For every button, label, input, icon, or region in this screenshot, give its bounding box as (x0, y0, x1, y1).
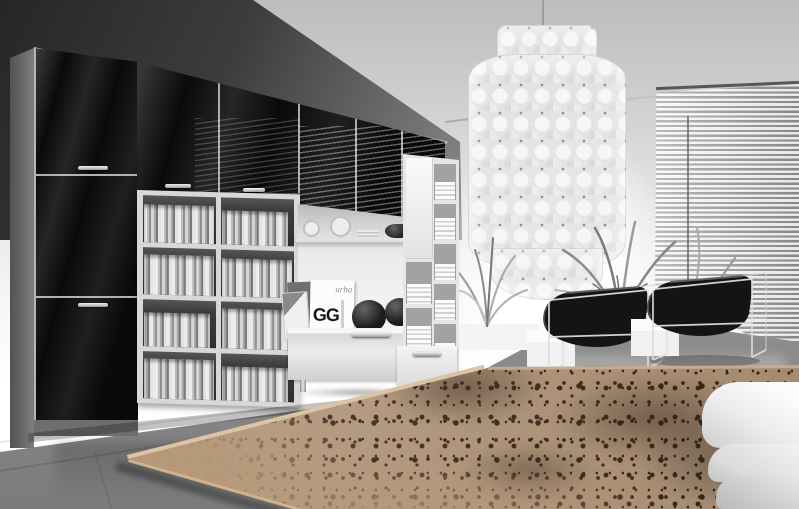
wall-unit-left-doors (34, 48, 140, 420)
books (222, 211, 288, 247)
drawer-handle (352, 333, 390, 337)
shelf-cell (143, 351, 216, 400)
linen-stack (407, 284, 431, 304)
linen-stack (435, 218, 455, 240)
linen-stack (435, 264, 455, 280)
bookcase-cell (434, 164, 456, 200)
books (144, 312, 210, 348)
bookshelf (137, 190, 300, 408)
books (222, 367, 288, 403)
artwork-monogram: GG (313, 305, 339, 326)
bookcase-cell (434, 244, 456, 280)
artwork-gg: urba GG (310, 280, 355, 335)
candlestick (341, 300, 344, 331)
shelf-cell (143, 247, 216, 296)
plate-stack (357, 230, 379, 238)
floating-shelf (296, 238, 414, 242)
bookcase-door (406, 158, 433, 259)
door-divider (36, 296, 140, 298)
books (144, 205, 214, 245)
shelf-cell (221, 197, 294, 246)
artwork-script-word: urba (335, 284, 352, 294)
bookcase-cell (406, 262, 432, 304)
shelf-cell (221, 353, 294, 402)
standing-plate (303, 220, 320, 237)
sofa-base (716, 477, 799, 509)
shelf-cell (143, 195, 216, 244)
bookcase-cell (434, 204, 456, 240)
lounge-chairs (515, 250, 795, 380)
bookcase-cell (434, 284, 456, 320)
door-divider (36, 174, 140, 176)
linen-stack (435, 300, 455, 320)
books (144, 254, 214, 296)
standing-plate (330, 216, 351, 237)
shelf-cell (143, 299, 216, 348)
door-handle (165, 184, 191, 188)
sofa-cushion-top (702, 382, 799, 448)
books (144, 358, 214, 400)
living-room-photo: urba GG (0, 0, 799, 509)
lounge-chair-right (631, 273, 766, 367)
bookcase-cell (406, 308, 432, 350)
door-handle (78, 303, 108, 307)
linen-stack (435, 182, 455, 200)
door-handle (78, 166, 108, 170)
books (222, 308, 292, 350)
shelf-cell (221, 249, 294, 298)
wall-unit-side-panel (10, 48, 34, 448)
drawer-handle (413, 352, 441, 356)
